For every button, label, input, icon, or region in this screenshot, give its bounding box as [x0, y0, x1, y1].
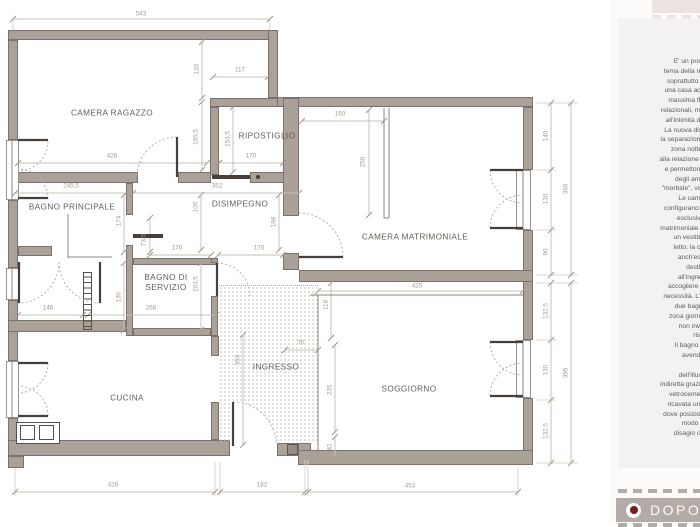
dimension-label: 118 — [323, 300, 330, 310]
room-label-ripostiglio: RIPOSTIGLIO — [239, 132, 296, 141]
dimension-label: 170 — [254, 245, 265, 252]
dimension-label: 268 — [146, 305, 157, 312]
dimension-label: 203,5 — [193, 276, 200, 292]
dopo-dashes-bottom — [618, 523, 700, 527]
sidebar-text: E' un prog tema della rel soprattutto q … — [600, 57, 700, 439]
dimension-label: 426 — [107, 153, 118, 160]
plan-lines-layer — [0, 0, 610, 525]
dopo-dashes-top — [618, 489, 700, 493]
dimension-label: 235 — [327, 385, 334, 396]
dimension-label: 90 — [543, 248, 550, 255]
dopo-bar[interactable]: DOPO — [616, 498, 700, 522]
room-label-ingresso: INGRESSO — [253, 363, 299, 372]
dimension-label: 543 — [136, 11, 147, 18]
dimension-label: 395 — [563, 368, 570, 379]
dimension-label: 73,5 — [141, 234, 148, 246]
room-label-camera-ragazzo: CAMERA RAGAZZO — [71, 109, 153, 118]
dimension-label: 170 — [246, 153, 257, 160]
dimension-label: 182 — [257, 482, 268, 489]
dimension-label: 360 — [563, 184, 570, 195]
floor-plan: CAMERA RAGAZZO RIPOSTIGLIO BAGNO PRINCIP… — [0, 0, 610, 525]
dimension-label: 130 — [543, 365, 550, 376]
dimension-label: 425 — [412, 283, 423, 290]
dimension-label: 130 — [194, 64, 201, 75]
dimension-label: 100 — [193, 202, 200, 213]
dopo-bullet-icon — [626, 503, 641, 518]
dimension-label: 132,5 — [543, 423, 550, 439]
dimension-label: 250 — [360, 157, 367, 168]
dimension-label: 42 — [327, 443, 334, 450]
dimension-label: 132,5 — [543, 303, 550, 319]
dimension-label: 117 — [235, 67, 245, 74]
dimension-label: 165,5 — [193, 129, 200, 145]
dimension-label: 245,5 — [63, 183, 79, 190]
room-label-bagno-di-servizio: BAGNO DI SERVIZIO — [137, 273, 195, 293]
dimension-label: 160 — [335, 111, 346, 118]
dimension-label: 426 — [108, 482, 119, 489]
dimension-label: 198 — [271, 217, 278, 228]
dimension-label: 352 — [212, 183, 223, 190]
dimension-label: 353 — [235, 355, 242, 366]
dopo-label: DOPO — [650, 502, 700, 518]
dimension-label: 130 — [116, 292, 123, 303]
dimension-label: 130 — [543, 194, 550, 205]
room-label-camera-matrimoniale: CAMERA MATRIMONIALE — [362, 233, 468, 242]
dimension-label: 170 — [172, 245, 183, 252]
room-label-cucina: CUCINA — [110, 394, 144, 403]
page-tab — [652, 0, 700, 13]
dimension-label: 453 — [405, 483, 416, 490]
dimension-label: 174 — [116, 216, 123, 227]
dimension-label: 146 — [43, 305, 54, 312]
room-label-disimpegno: DISIMPEGNO — [212, 200, 268, 209]
dimension-label: 153,5 — [225, 131, 232, 147]
room-label-soggiorno: SOGGIORNO — [381, 385, 436, 394]
dimension-label: 70 — [297, 340, 304, 347]
dimension-label: 140 — [543, 131, 550, 142]
room-label-bagno-principale: BAGNO PRINCIPALE — [29, 203, 115, 212]
